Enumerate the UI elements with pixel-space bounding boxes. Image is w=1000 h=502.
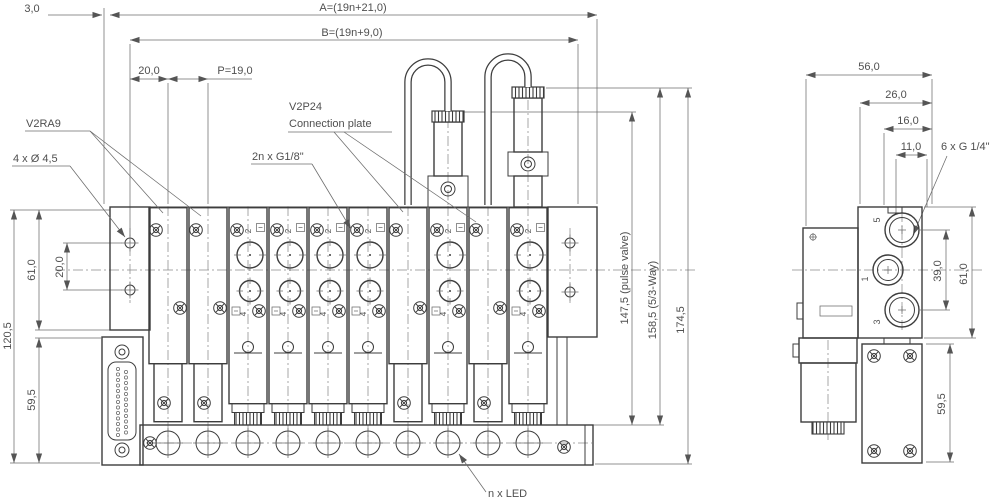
base-rail [140,425,593,465]
dim-53way-height-label: 158,5 (5/3-Way) [647,261,659,339]
mounting-holes-callout: 4 x Ø 4,5 [13,153,58,165]
supply-ports-callout: 6 x G 1/4" [941,141,990,153]
valve-stations [149,206,547,457]
dim-hole-to-station-label: 20,0 [138,65,159,77]
mounting-hole [562,284,579,301]
led-indicator [473,428,503,458]
cable-loop-2 [488,57,528,205]
valve-53way-station [509,206,547,457]
side-base-block [862,344,922,463]
valve-station [309,206,347,457]
led-indicator [233,428,263,458]
dim-connector-height-label: 59,5 [26,389,38,410]
dim-hole-spacing-label: 20,0 [54,256,66,277]
dim-pulse-valve-height-label: 147,5 (pulse valve) [619,232,631,325]
side-valve-profile [797,228,858,338]
side-centerlines [792,212,984,440]
working-ports-callout: 2n x G1/8" [252,151,304,163]
connection-plate-callout-line2: Connection plate [289,118,372,130]
led-indicator [193,428,223,458]
valve-terminal-drawing: 2 4 [0,0,1000,502]
mounting-hole [122,282,139,299]
valve-station [269,206,307,457]
front-centerlines [55,64,698,443]
dim-block-height-label: 61,0 [958,263,970,284]
coil-connector-ribbed [812,422,844,434]
led-indicator [433,428,463,458]
dim-16-label: 16,0 [897,115,918,127]
dim-total-height-label: 174,5 [675,306,687,334]
cable-gland-ribbed [432,111,464,122]
side-dimensions-top: 56,0 26,0 16,0 11,0 6 x G 1/4" [806,61,990,235]
led-indicator [353,428,383,458]
mounting-hole [562,235,579,252]
led-indicator [273,428,303,458]
dim-depth-label: 56,0 [858,61,879,73]
dim-rail-height-label: 61,0 [26,259,38,280]
dim-port-spacing-label: 39,0 [932,260,944,281]
led-indicator [513,428,543,458]
port-1-label: 1 [860,276,870,281]
valve-station [229,206,267,457]
dim-base-height-label: 59,5 [936,393,948,414]
cable-gland-ribbed [512,87,544,98]
led-indicator [153,428,183,458]
blanking-station [149,206,187,457]
side-port-block: 5 1 3 [858,207,922,344]
led-indicator [393,428,423,458]
side-dimensions-right: 39,0 61,0 59,5 [920,207,976,462]
mounting-hole [122,235,139,252]
blanking-station [189,206,227,457]
connection-plate-station [389,206,427,457]
dsub-pins [116,367,127,436]
valve-station [349,206,387,457]
blanking-plate-callout: V2RA9 [26,118,61,130]
dim-body-height-label: 120,5 [2,322,14,350]
port-5-label: 5 [872,217,882,222]
pulse-valve-station [429,206,467,457]
connection-plate-station [469,206,507,457]
dim-length-b-label: B=(19n+9,0) [321,27,382,39]
front-view: 3,0 A=(19n+21,0) B=(19n+9,0) 20,0 P=19,0… [2,2,698,500]
dim-11-label: 11,0 [901,141,922,153]
dim-length-a-label: A=(19n+21,0) [319,2,386,14]
side-view: 56,0 26,0 16,0 11,0 6 x G 1/4" [792,61,990,463]
port-3-label: 3 [872,319,882,324]
dsub-connector-block [102,337,143,465]
led-callout: n x LED [488,488,527,500]
end-plate-right [548,207,597,425]
side-solenoid-coil [793,338,857,434]
connection-plate-callout-line1: V2P24 [289,101,322,113]
dim-offset-3-label: 3,0 [24,3,39,15]
led-indicator [313,428,343,458]
drawing-canvas: 2 4 [0,0,1000,502]
dim-26-label: 26,0 [885,89,906,101]
dim-pitch-label: P=19,0 [217,65,252,77]
